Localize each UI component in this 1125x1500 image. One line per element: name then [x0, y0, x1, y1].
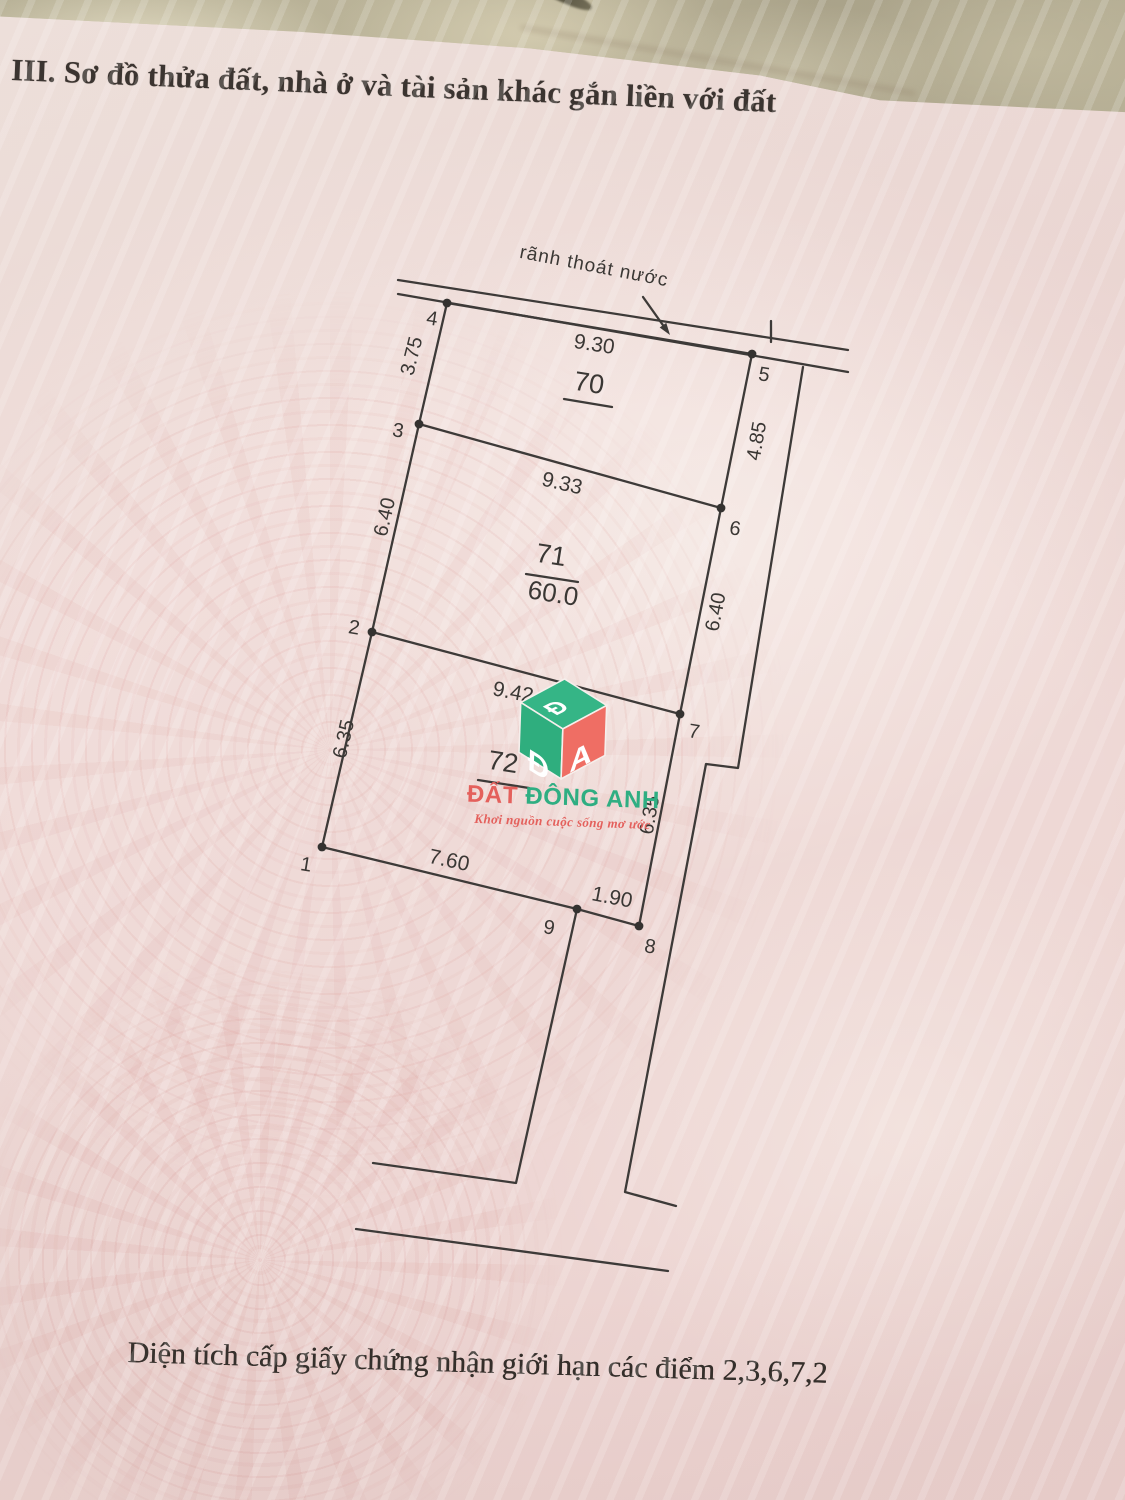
drain-label: rãnh thoát nước [518, 242, 670, 291]
vertex-2 [368, 628, 377, 637]
drain-line-upper [398, 280, 848, 350]
vertex-9 [573, 905, 582, 914]
edge-length-6-3: 9.33 [540, 468, 585, 500]
drain-arrowhead [660, 323, 670, 335]
vertex-6 [717, 504, 726, 513]
edge-length-2-1: 6.35 [329, 718, 359, 761]
vertex-5 [748, 350, 757, 359]
road-bottom-line [356, 1229, 668, 1271]
point-7-label: 7 [687, 720, 701, 743]
brand-word-dong-anh: ĐÔNG ANH [525, 783, 660, 815]
point-5-label: 5 [757, 363, 771, 386]
vertex-4 [443, 299, 452, 308]
drain-arrow-line [643, 297, 665, 328]
alley-left-boundary [373, 909, 577, 1183]
vertex-8 [635, 922, 644, 931]
edge-length-3-4: 3.75 [397, 334, 428, 377]
brand-word-dat: ĐẤT [467, 781, 519, 810]
point-4-label: 4 [425, 307, 439, 330]
vertex-3 [415, 420, 424, 429]
certificate-page: III. Sơ đồ thửa đất, nhà ở và tài sản kh… [0, 0, 1125, 1500]
point-6-label: 6 [728, 517, 742, 540]
point-3-label: 3 [391, 419, 405, 442]
edge-length-6-7: 6.40 [701, 591, 730, 633]
watermark-logo: Đ Đ A ĐẤT ĐÔNG ANH Khơi nguồn cuộc sống … [449, 664, 681, 842]
point-8-label: 8 [643, 935, 657, 958]
parcel-71-number: 71 [534, 538, 568, 572]
point-9-label: 9 [542, 916, 556, 939]
edge-length-1-9: 7.60 [427, 845, 472, 876]
logo-cube-icon: Đ Đ A [515, 676, 611, 781]
edge-length-5-6: 4.85 [743, 420, 771, 462]
edge-length-4-5: 9.30 [572, 330, 616, 359]
vertex-1 [318, 843, 327, 852]
edge-length-9-8: 1.90 [590, 882, 635, 912]
point-1-label: 1 [299, 853, 313, 876]
parcel-70-number: 70 [572, 366, 606, 400]
parcel-71-area: 60.0 [526, 574, 581, 612]
underline-parcel-70 [564, 399, 612, 407]
point-2-label: 2 [347, 616, 361, 639]
